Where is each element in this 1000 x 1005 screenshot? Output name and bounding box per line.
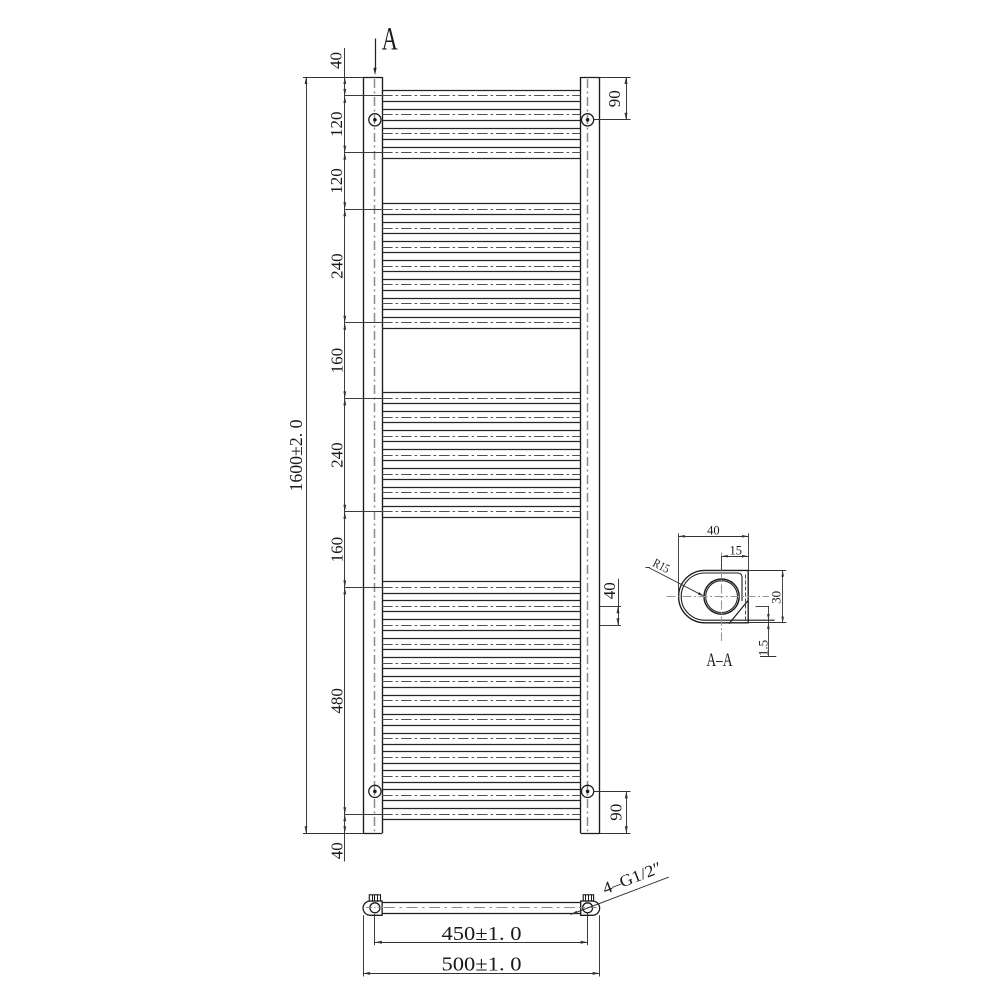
svg-text:30: 30 [769, 591, 784, 604]
svg-text:A: A [382, 22, 398, 58]
svg-text:500±1. 0: 500±1. 0 [442, 953, 522, 975]
svg-text:40: 40 [600, 582, 619, 599]
svg-text:120: 120 [327, 168, 346, 194]
svg-text:40: 40 [327, 52, 346, 69]
svg-text:240: 240 [328, 253, 347, 279]
svg-text:240: 240 [328, 442, 347, 468]
svg-text:160: 160 [328, 537, 347, 563]
svg-text:450±1. 0: 450±1. 0 [442, 923, 522, 945]
svg-text:480: 480 [328, 688, 347, 714]
svg-text:160: 160 [328, 348, 347, 374]
svg-text:90: 90 [607, 804, 626, 821]
svg-text:40: 40 [707, 523, 720, 537]
svg-text:1.5: 1.5 [755, 640, 770, 656]
svg-text:A–A: A–A [707, 650, 733, 671]
svg-text:1600±2. 0: 1600±2. 0 [286, 420, 306, 492]
svg-text:120: 120 [327, 112, 346, 138]
svg-text:15: 15 [730, 543, 743, 557]
svg-text:40: 40 [328, 842, 347, 859]
svg-text:90: 90 [605, 90, 624, 107]
